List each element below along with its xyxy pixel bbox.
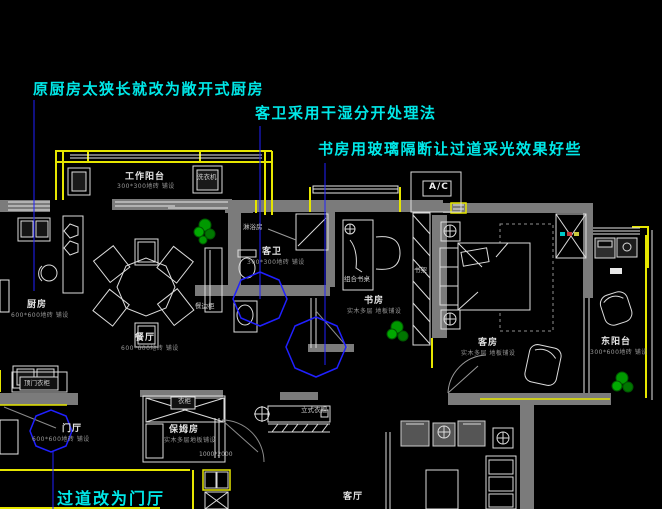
living-room-furniture xyxy=(386,421,516,509)
kitchen-fixtures xyxy=(13,216,83,388)
plant-dining xyxy=(194,219,215,244)
plant-east-balcony xyxy=(612,372,633,392)
plant-study xyxy=(387,321,408,341)
cad-floorplan-view: 原厨房太狭长就改为敞开式厨房客卫采用干湿分开处理法书房用玻璃隔断让过道采光效果好… xyxy=(0,0,662,509)
corridor-fixtures xyxy=(254,406,330,432)
floorplan-linework xyxy=(0,0,662,509)
revision-clouds xyxy=(30,272,346,452)
guest-room-furniture xyxy=(440,214,586,393)
cloud-entry-hall xyxy=(30,410,72,452)
nanny-room-furniture xyxy=(143,396,264,462)
east-balcony-fixtures xyxy=(595,238,637,328)
balcony-fixtures xyxy=(68,166,222,195)
furniture xyxy=(4,166,637,509)
